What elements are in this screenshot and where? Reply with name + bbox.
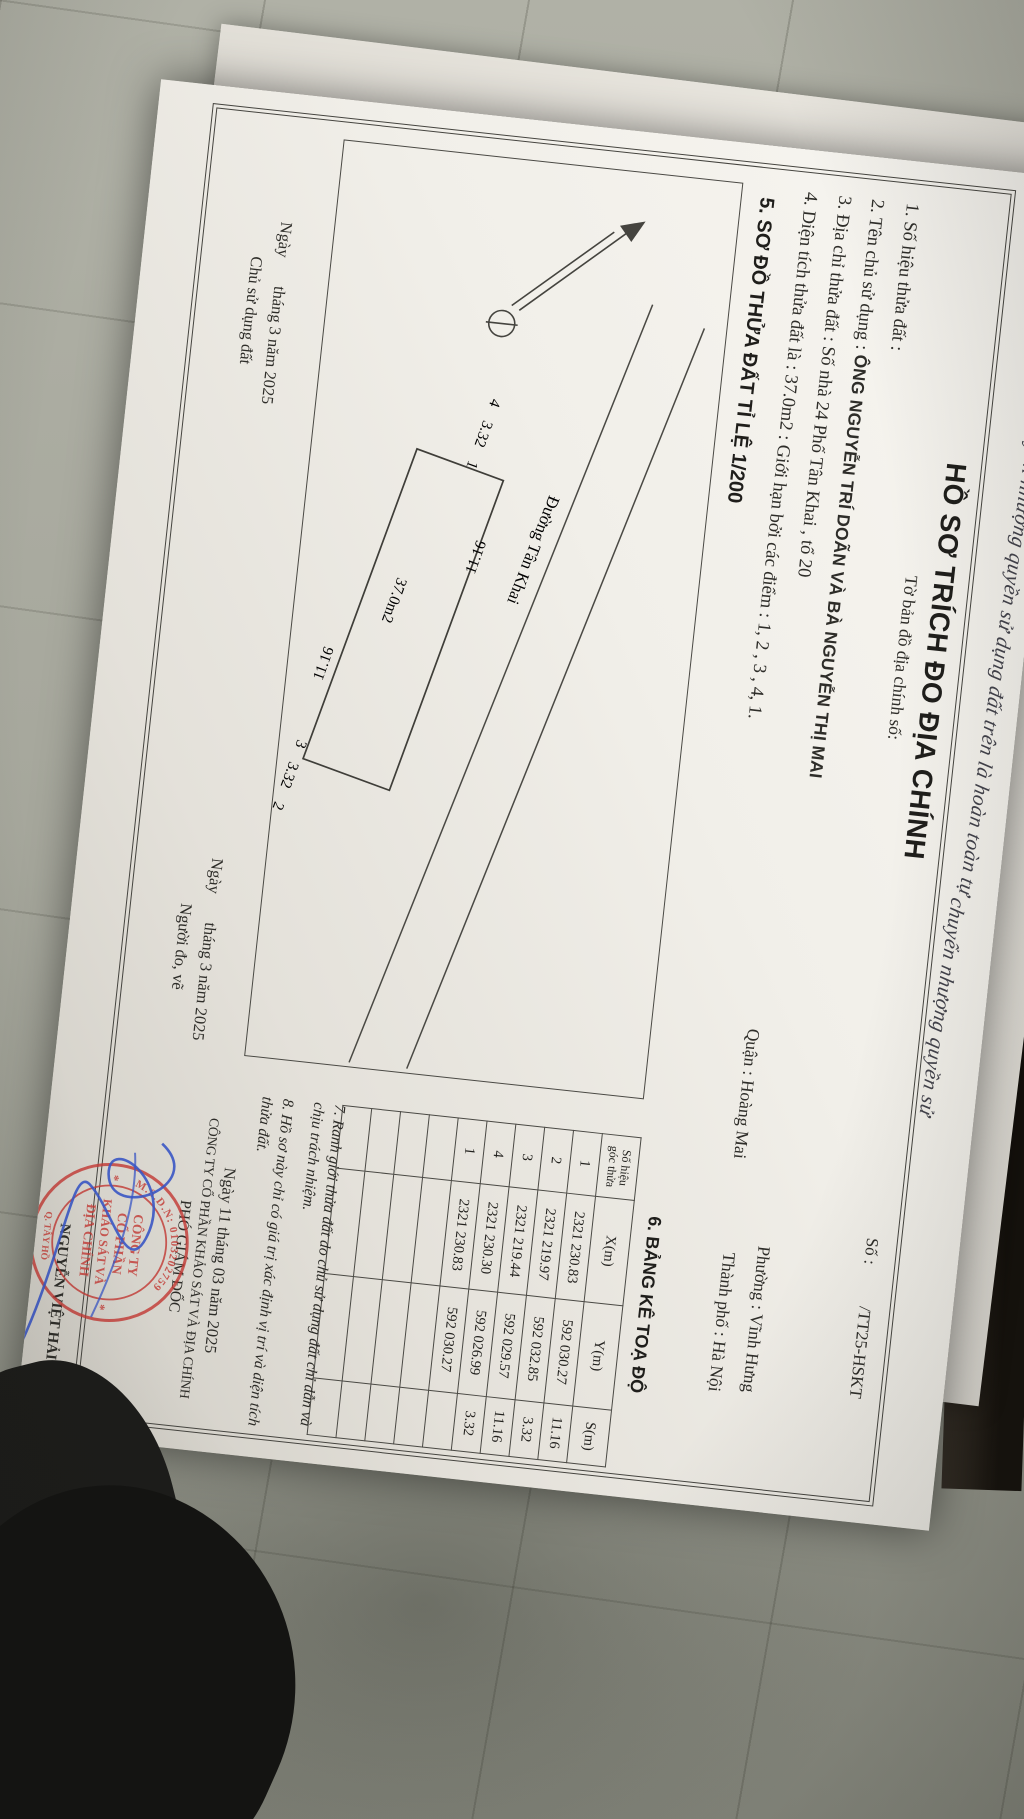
table-empty-cell bbox=[365, 1384, 400, 1444]
cell-s: 11.16 bbox=[538, 1403, 573, 1463]
col-header-point: Số hiệu góc thửa bbox=[596, 1134, 642, 1201]
cell-s bbox=[422, 1390, 457, 1450]
photo-of-cadastral-document: CHÍNH Tôi xin cam đoan việc chuyển nhượn… bbox=[0, 0, 1024, 1819]
col-header-s: S(m) bbox=[567, 1406, 612, 1467]
north-arrow-icon bbox=[484, 205, 645, 350]
cell-s: 3.32 bbox=[509, 1400, 544, 1460]
document-page: Tôi xin cam đoan việc chuyển nhượng quyề… bbox=[14, 79, 1024, 1530]
document-number-label: Số : bbox=[860, 1237, 882, 1266]
table-empty-cell bbox=[394, 1387, 429, 1447]
cell-s: 3.32 bbox=[451, 1393, 486, 1453]
dimension-top: 4 3.32 1 bbox=[462, 396, 503, 471]
cell-s: 11.16 bbox=[480, 1396, 515, 1456]
road-lines bbox=[349, 281, 706, 1092]
dimension-side-1: 11.16 bbox=[462, 538, 490, 576]
table-empty-cell bbox=[336, 1381, 371, 1441]
parcel-area-label: 37.0m2 bbox=[378, 575, 410, 625]
parcel-outline bbox=[303, 449, 503, 790]
coordinate-table: Số hiệu góc thửa X(m) Y(m) S(m) 1 2321 2… bbox=[307, 1105, 642, 1468]
